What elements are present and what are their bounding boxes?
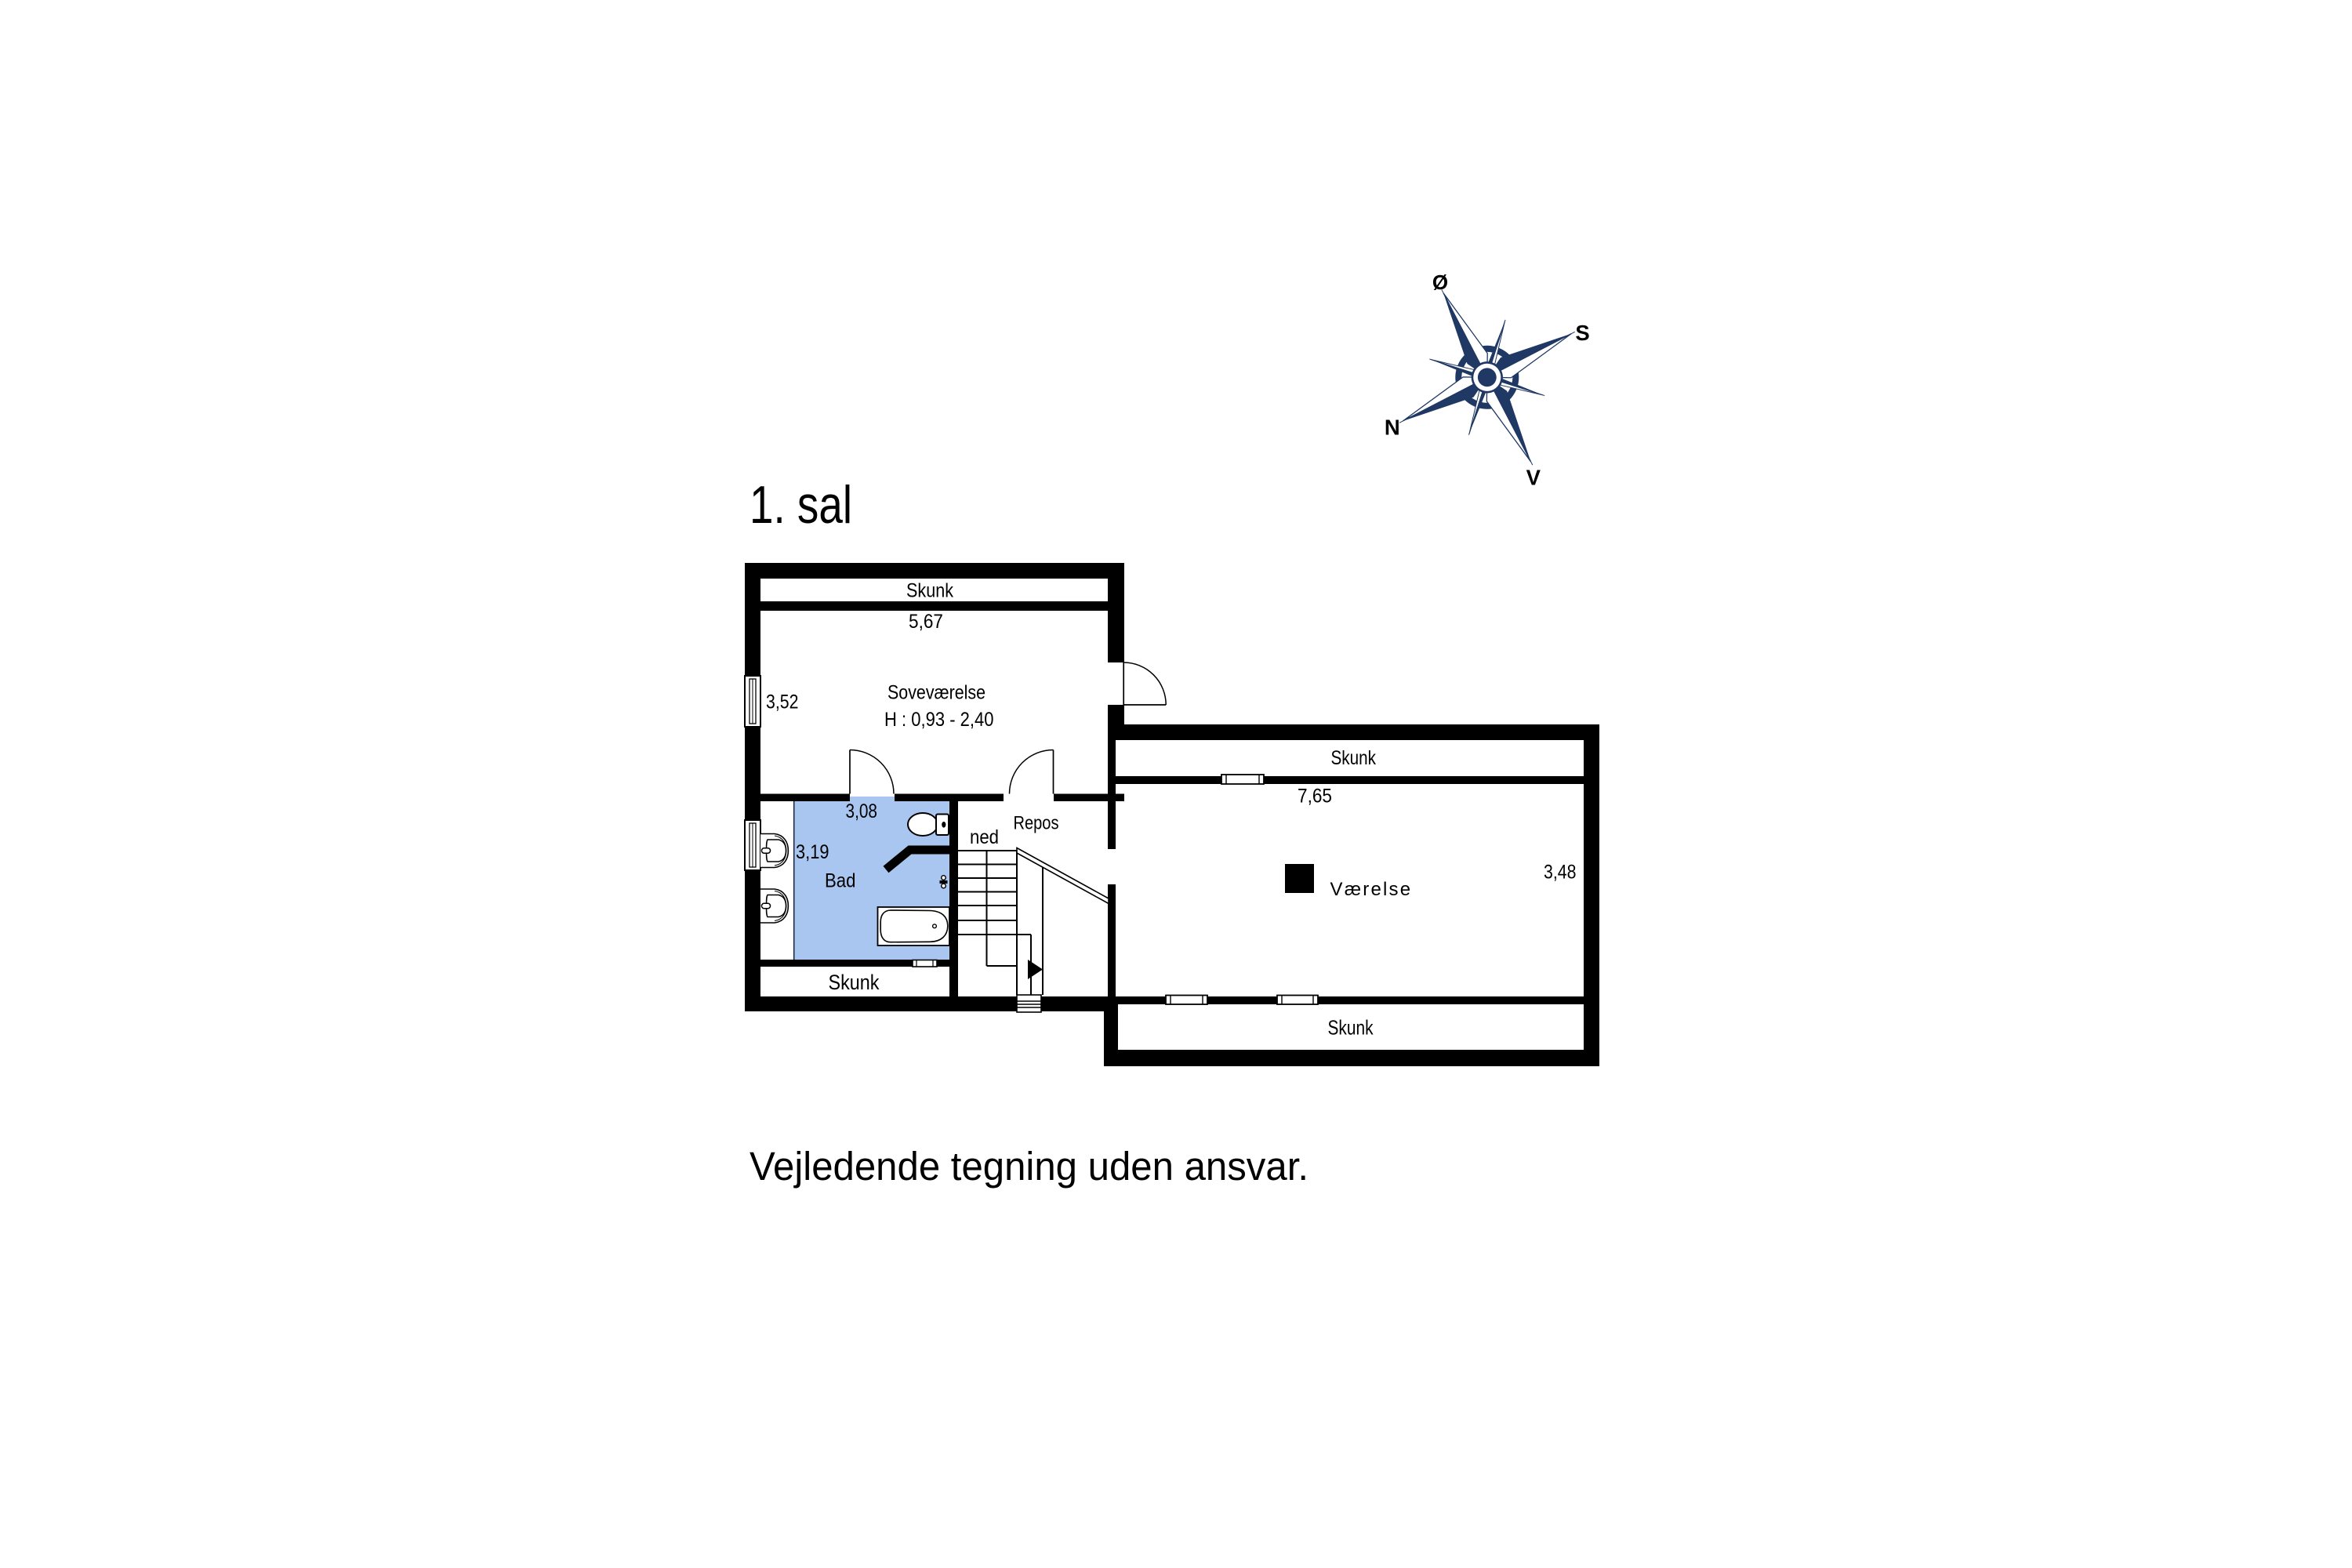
svg-text:ned: ned <box>970 826 999 848</box>
svg-text:Bad: Bad <box>825 870 856 892</box>
svg-text:3,19: 3,19 <box>796 841 829 863</box>
svg-text:Soveværelse: Soveværelse <box>887 682 985 704</box>
svg-text:3,48: 3,48 <box>1544 862 1577 884</box>
svg-text:7,65: 7,65 <box>1298 786 1332 808</box>
svg-text:Værelse: Værelse <box>1330 879 1413 900</box>
svg-text:3,08: 3,08 <box>846 800 878 822</box>
svg-text:Ø: Ø <box>1432 270 1448 294</box>
svg-text:3,52: 3,52 <box>766 691 799 713</box>
svg-text:Skunk: Skunk <box>906 580 953 602</box>
svg-text:5,67: 5,67 <box>909 611 943 633</box>
svg-text:S: S <box>1575 321 1589 345</box>
svg-text:Skunk: Skunk <box>829 971 880 994</box>
svg-text:H : 0,93 - 2,40: H : 0,93 - 2,40 <box>884 709 994 731</box>
svg-text:Repos: Repos <box>1014 813 1059 834</box>
svg-text:Skunk: Skunk <box>1328 1016 1374 1040</box>
svg-text:Skunk: Skunk <box>1331 747 1377 769</box>
svg-text:Vejledende tegning uden ansvar: Vejledende tegning uden ansvar. <box>750 1144 1308 1189</box>
svg-text:V: V <box>1526 466 1541 490</box>
svg-text:1. sal: 1. sal <box>750 475 852 535</box>
svg-text:N: N <box>1385 416 1400 440</box>
